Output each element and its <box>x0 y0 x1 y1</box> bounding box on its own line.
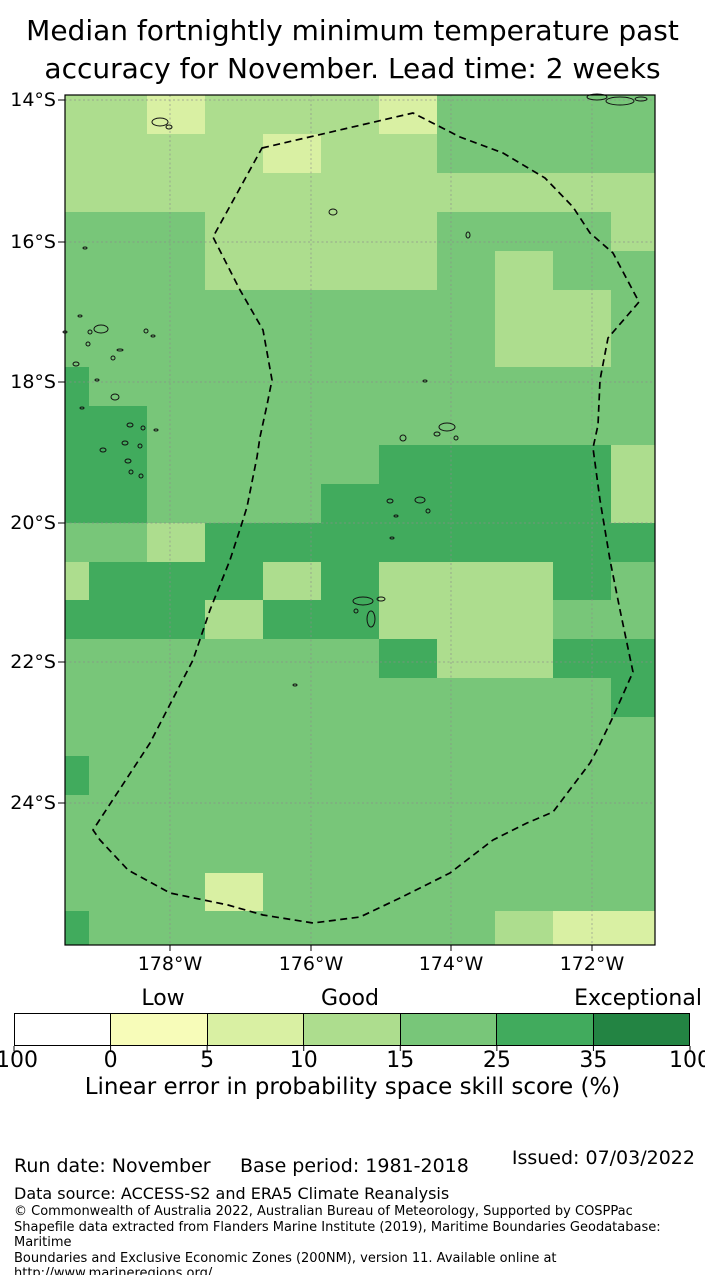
grid-cell <box>205 873 263 911</box>
colorbar-tick-label: 5 <box>200 1048 214 1073</box>
grid-cell <box>321 911 379 945</box>
grid-cell <box>379 251 437 290</box>
grid-cell <box>147 795 205 834</box>
grid-cell <box>321 251 379 290</box>
grid-cell <box>89 717 147 756</box>
grid-cell <box>321 406 379 445</box>
grid-cell <box>437 523 495 562</box>
base-period-text: Base period: 1981-2018 <box>240 1155 469 1177</box>
grid-cell <box>437 795 495 834</box>
grid-cell <box>437 756 495 795</box>
grid-cell <box>263 484 321 523</box>
grid-cell <box>263 678 321 717</box>
grid-cell <box>263 639 321 678</box>
grid-cell <box>89 834 147 873</box>
copyright-line: Shapefile data extracted from Flanders M… <box>14 1220 704 1251</box>
grid-cell <box>147 600 205 639</box>
skill-map-page: Median fortnightly minimum temperature p… <box>0 0 705 1275</box>
grid-cell <box>437 911 495 945</box>
grid-cell <box>147 290 205 328</box>
grid-cell <box>205 134 263 173</box>
grid-cell <box>321 95 379 134</box>
colorbar-zone-label-good: Good <box>321 986 379 1011</box>
grid-cell <box>379 367 437 406</box>
grid-cell <box>611 562 655 600</box>
grid-cell <box>321 134 379 173</box>
grid-cell <box>437 406 495 445</box>
grid-cell <box>321 639 379 678</box>
grid-cell <box>263 328 321 367</box>
grid-cell <box>147 445 205 484</box>
grid-cell <box>379 600 437 639</box>
grid-cell <box>263 134 321 173</box>
grid-cell <box>89 445 147 484</box>
grid-cell <box>437 834 495 873</box>
grid-cell <box>321 678 379 717</box>
colorbar-tick-label: 25 <box>483 1048 511 1073</box>
grid-cell <box>553 251 611 290</box>
grid-cell <box>553 834 611 873</box>
lat-label: 24°S <box>0 792 56 814</box>
grid-cell <box>437 367 495 406</box>
colorbar-tick-label: 35 <box>579 1048 607 1073</box>
grid-cell <box>321 212 379 251</box>
grid-cell <box>89 873 147 911</box>
grid-cell <box>437 445 495 484</box>
grid-cell <box>205 95 263 134</box>
grid-cell <box>553 639 611 678</box>
grid-cell <box>89 367 147 406</box>
grid-cell <box>495 600 553 639</box>
grid-cell <box>205 367 263 406</box>
grid-cell <box>89 212 147 251</box>
grid-cell <box>495 873 553 911</box>
grid-cell <box>553 523 611 562</box>
grid-cell <box>553 562 611 600</box>
grid-cell <box>147 212 205 251</box>
grid-cell <box>495 484 553 523</box>
grid-cell <box>263 406 321 445</box>
grid-cell <box>65 834 89 873</box>
grid-cell <box>89 562 147 600</box>
grid-cell <box>379 134 437 173</box>
grid-cell <box>495 562 553 600</box>
grid-cell <box>321 445 379 484</box>
grid-cell <box>147 484 205 523</box>
grid-cell <box>321 367 379 406</box>
grid-cell <box>495 406 553 445</box>
colorbar-tick-label: 15 <box>386 1048 414 1073</box>
grid-cell <box>553 367 611 406</box>
grid-cell <box>611 290 655 328</box>
grid-cell <box>611 367 655 406</box>
grid-cell <box>263 95 321 134</box>
grid-cell <box>495 834 553 873</box>
grid-cell <box>147 406 205 445</box>
grid-cell <box>263 873 321 911</box>
grid-cell <box>611 251 655 290</box>
grid-cell <box>379 484 437 523</box>
grid-cell <box>205 639 263 678</box>
grid-cell <box>65 95 89 134</box>
grid-cell <box>553 756 611 795</box>
grid-cell <box>437 873 495 911</box>
grid-cell <box>611 95 655 134</box>
lat-label: 16°S <box>0 231 56 253</box>
grid-cell <box>495 678 553 717</box>
grid-cell <box>553 484 611 523</box>
copyright-line: Boundaries and Exclusive Economic Zones … <box>14 1251 704 1267</box>
data-source-text: Data source: ACCESS-S2 and ERA5 Climate … <box>14 1184 449 1203</box>
lat-label: 14°S <box>0 89 56 111</box>
grid-cell <box>553 911 611 945</box>
grid-cell <box>553 173 611 212</box>
grid-cell <box>65 523 89 562</box>
grid-cell <box>147 834 205 873</box>
grid-cell <box>205 678 263 717</box>
grid-cell <box>89 328 147 367</box>
grid-cell <box>379 445 437 484</box>
grid-cell <box>65 756 89 795</box>
grid-cell <box>437 562 495 600</box>
lat-label: 18°S <box>0 371 56 393</box>
grid-cell <box>205 445 263 484</box>
grid-cell <box>321 795 379 834</box>
grid-cell <box>89 484 147 523</box>
grid-cell <box>147 134 205 173</box>
grid-cell <box>553 600 611 639</box>
grid-cell <box>553 328 611 367</box>
grid-cell <box>321 756 379 795</box>
grid-cell <box>89 134 147 173</box>
grid-cell <box>263 445 321 484</box>
grid-cell <box>495 251 553 290</box>
grid-cell <box>263 562 321 600</box>
grid-cell <box>263 367 321 406</box>
grid-cell <box>147 95 205 134</box>
colorbar-tick-label: 10 <box>290 1048 318 1073</box>
colorbar-segment <box>110 1014 206 1045</box>
grid-cell <box>495 717 553 756</box>
grid-cell <box>321 290 379 328</box>
grid-cell <box>379 562 437 600</box>
grid-cell <box>147 756 205 795</box>
grid-cell <box>437 600 495 639</box>
grid-cell <box>321 600 379 639</box>
grid-cell <box>205 834 263 873</box>
grid-cell <box>65 290 89 328</box>
grid-cell <box>205 406 263 445</box>
grid-cell <box>263 290 321 328</box>
grid-cell <box>379 290 437 328</box>
grid-cell <box>379 756 437 795</box>
grid-cell <box>495 95 553 134</box>
grid-cell <box>263 523 321 562</box>
grid-cell <box>553 873 611 911</box>
grid-cell <box>89 406 147 445</box>
grid-cell <box>495 328 553 367</box>
grid-cell <box>263 212 321 251</box>
colorbar-segment <box>496 1014 592 1045</box>
grid-cell <box>89 251 147 290</box>
grid-cell <box>65 911 89 945</box>
grid-cell <box>147 523 205 562</box>
grid-cell <box>147 173 205 212</box>
grid-cell <box>495 212 553 251</box>
grid-cell <box>89 95 147 134</box>
lon-label: 174°W <box>406 953 496 975</box>
colorbar-segment <box>400 1014 496 1045</box>
grid-cell <box>147 911 205 945</box>
grid-cell <box>379 406 437 445</box>
grid-cell <box>495 523 553 562</box>
grid-cell <box>205 795 263 834</box>
lon-label: 178°W <box>125 953 215 975</box>
grid-cell <box>65 562 89 600</box>
grid-cell <box>379 212 437 251</box>
grid-cell <box>65 484 89 523</box>
grid-cell <box>611 873 655 911</box>
grid-cell <box>321 873 379 911</box>
grid-cell <box>263 600 321 639</box>
grid-cell <box>205 717 263 756</box>
grid-cell <box>553 717 611 756</box>
colorbar-tick-label: 0 <box>104 1048 118 1073</box>
grid-cell <box>611 678 655 717</box>
grid-cell <box>611 173 655 212</box>
copyright-block: © Commonwealth of Australia 2022, Austra… <box>14 1204 704 1275</box>
grid-cell <box>321 173 379 212</box>
grid-cell <box>205 756 263 795</box>
grid-cell <box>89 600 147 639</box>
grid-cell <box>379 173 437 212</box>
grid-cell <box>147 639 205 678</box>
grid-cell <box>205 251 263 290</box>
grid-cell <box>379 834 437 873</box>
grid-cell <box>611 717 655 756</box>
grid-cell <box>65 134 89 173</box>
lat-label: 20°S <box>0 512 56 534</box>
grid-cell <box>89 290 147 328</box>
grid-cell <box>611 600 655 639</box>
run-date-text: Run date: November <box>14 1155 211 1177</box>
grid-cell <box>437 134 495 173</box>
grid-cell <box>321 484 379 523</box>
grid-cell <box>495 795 553 834</box>
grid-cell <box>611 134 655 173</box>
grid-cell <box>65 367 89 406</box>
grid-cell <box>379 873 437 911</box>
grid-cell <box>65 873 89 911</box>
grid-cell <box>495 367 553 406</box>
colorbar-zone-label-low: Low <box>141 986 184 1011</box>
grid-cell <box>263 173 321 212</box>
grid-cell <box>321 562 379 600</box>
grid-cell <box>263 251 321 290</box>
grid-cell <box>379 795 437 834</box>
grid-cell <box>89 756 147 795</box>
colorbar-tick-label: 100 <box>0 1048 38 1073</box>
grid-cell <box>321 717 379 756</box>
grid-cell <box>437 251 495 290</box>
grid-cell <box>263 717 321 756</box>
grid-cell <box>65 717 89 756</box>
grid-cell <box>263 756 321 795</box>
grid-cell <box>553 445 611 484</box>
grid-cell <box>65 328 89 367</box>
grid-cell <box>379 328 437 367</box>
grid-cell <box>205 484 263 523</box>
grid-cell <box>65 678 89 717</box>
grid-cell <box>379 639 437 678</box>
grid-cell <box>611 523 655 562</box>
grid-cell <box>379 523 437 562</box>
grid-cell <box>89 523 147 562</box>
grid-cell <box>205 328 263 367</box>
grid-cell <box>437 484 495 523</box>
grid-cell <box>379 911 437 945</box>
lon-label: 176°W <box>266 953 356 975</box>
grid-cell <box>611 484 655 523</box>
grid-cell <box>147 873 205 911</box>
copyright-line: http://www.marineregions.org/. <box>14 1266 704 1275</box>
grid-cell <box>437 639 495 678</box>
grid-cell <box>65 251 89 290</box>
grid-cell <box>437 212 495 251</box>
grid-cell <box>611 795 655 834</box>
grid-cell <box>437 717 495 756</box>
colorbar <box>14 1013 690 1046</box>
colorbar-caption: Linear error in probability space skill … <box>0 1074 705 1100</box>
grid-cell <box>553 95 611 134</box>
grid-cell <box>379 717 437 756</box>
lat-label: 22°S <box>0 651 56 673</box>
colorbar-segment <box>303 1014 399 1045</box>
grid-cell <box>553 406 611 445</box>
grid-cell <box>611 911 655 945</box>
grid-cell <box>553 290 611 328</box>
grid-cell <box>65 445 89 484</box>
grid-cell <box>437 95 495 134</box>
grid-cell <box>65 173 89 212</box>
grid-cell <box>205 212 263 251</box>
grid-cell <box>147 328 205 367</box>
colorbar-segment <box>593 1014 689 1045</box>
grid-cell <box>495 911 553 945</box>
grid-cell <box>553 678 611 717</box>
grid-cell <box>89 173 147 212</box>
grid-cell <box>65 406 89 445</box>
grid-cell <box>205 600 263 639</box>
grid-cell <box>611 406 655 445</box>
issued-date-text: Issued: 07/03/2022 <box>512 1147 695 1169</box>
colorbar-segment <box>15 1014 110 1045</box>
grid-cell <box>205 523 263 562</box>
grid-cell <box>89 795 147 834</box>
grid-cell <box>495 445 553 484</box>
colorbar-segment <box>207 1014 303 1045</box>
grid-cell <box>65 600 89 639</box>
grid-cell <box>65 795 89 834</box>
grid-cell <box>89 911 147 945</box>
grid-cell <box>263 834 321 873</box>
grid-cell <box>321 523 379 562</box>
grid-cell <box>205 173 263 212</box>
grid-cell <box>147 678 205 717</box>
grid-cell <box>147 251 205 290</box>
grid-cell <box>553 134 611 173</box>
grid-cell <box>205 911 263 945</box>
grid-cell <box>495 173 553 212</box>
grid-cell <box>611 834 655 873</box>
grid-cell <box>89 678 147 717</box>
colorbar-zone-label-exceptional: Exceptional <box>574 986 702 1011</box>
colorbar-tick-label: 100 <box>669 1048 705 1073</box>
grid-cell <box>611 445 655 484</box>
grid-cell <box>205 290 263 328</box>
grid-cell <box>611 756 655 795</box>
grid-cell <box>437 290 495 328</box>
grid-cell <box>65 212 89 251</box>
grid-cell <box>611 212 655 251</box>
grid-cell <box>379 678 437 717</box>
grid-cell <box>147 367 205 406</box>
lon-label: 172°W <box>547 953 637 975</box>
grid-cell <box>65 639 89 678</box>
grid-cell <box>205 562 263 600</box>
grid-cell <box>437 328 495 367</box>
grid-cell <box>147 562 205 600</box>
grid-cell <box>147 717 205 756</box>
grid-cell <box>89 639 147 678</box>
grid-cell <box>321 328 379 367</box>
copyright-line: © Commonwealth of Australia 2022, Austra… <box>14 1204 704 1220</box>
grid-cell <box>321 834 379 873</box>
grid-cell <box>495 290 553 328</box>
grid-cell <box>495 639 553 678</box>
grid-cell <box>437 678 495 717</box>
grid-cell <box>437 173 495 212</box>
grid-cell <box>263 911 321 945</box>
grid-cell <box>553 212 611 251</box>
grid-cell <box>495 756 553 795</box>
grid-cell <box>611 328 655 367</box>
grid-cell <box>263 795 321 834</box>
